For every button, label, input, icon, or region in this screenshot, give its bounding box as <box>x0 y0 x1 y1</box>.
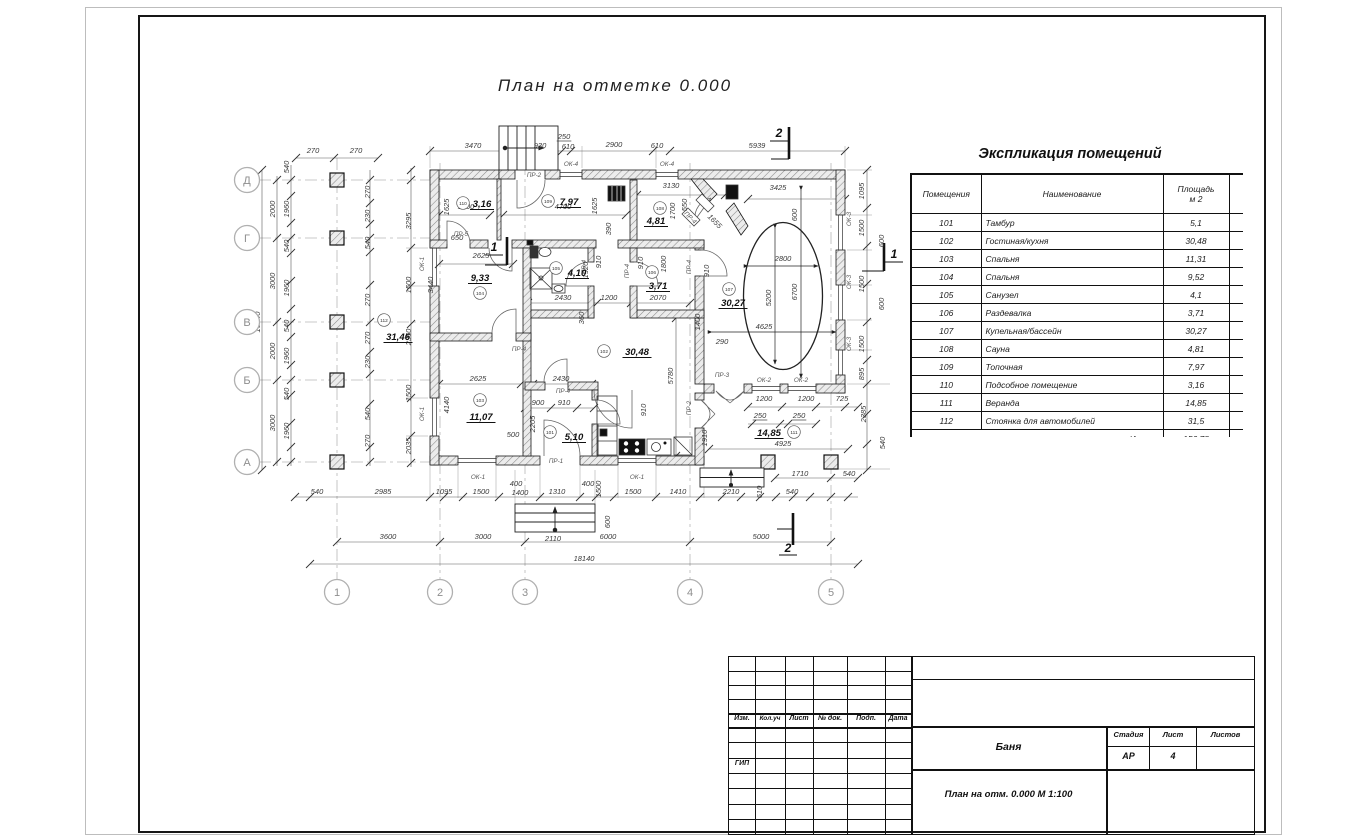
tb-col-ndok: № док. <box>813 715 847 722</box>
room-number: 101 <box>911 214 981 232</box>
axis-label: Г <box>244 233 250 245</box>
room-number: 102 <box>911 232 981 250</box>
explication-title: Экспликация помещений <box>905 146 1235 162</box>
room-area: 7,97 <box>560 197 579 208</box>
dim-label: 930 <box>534 141 547 150</box>
dim-label: 2985 <box>374 487 393 496</box>
room-name: Топочная <box>981 358 1163 376</box>
dim-label: 2800 <box>774 254 793 263</box>
room-name: Веранда <box>981 394 1163 412</box>
tb-col-list: Лист <box>785 715 813 722</box>
room-label: 10311,07 <box>467 394 496 423</box>
opening-label: ОК-4 <box>660 161 675 168</box>
room-number: 107 <box>725 287 733 293</box>
tb-sheets-label: Листов <box>1197 730 1254 739</box>
room-area: 30,27 <box>1163 322 1229 340</box>
dim-label: 540 <box>363 236 372 249</box>
dim-label: 1500 <box>404 276 413 294</box>
axis-label: 2 <box>437 587 443 599</box>
explication-header: К ж <box>1229 174 1243 214</box>
dim-label: 910 <box>594 255 603 268</box>
opening-label: ПР-4 <box>512 346 527 353</box>
room-number: 105 <box>911 286 981 304</box>
dim-label: 2000 <box>268 342 277 361</box>
room-number: 112 <box>911 412 981 430</box>
room-number: 102 <box>600 349 608 355</box>
table-row: 112Стоянка для автомобилей31,53 <box>911 412 1243 430</box>
room-extra <box>1229 232 1243 250</box>
dim-label: 1500 <box>857 335 866 353</box>
dim-label: 1500 <box>625 487 643 496</box>
opening-label: ПР-4 <box>556 388 571 395</box>
dim-label: 1095 <box>436 487 454 496</box>
room-label: 11114,85 <box>755 426 801 439</box>
dim-label: 1960 <box>282 200 291 218</box>
dim-label: 540 <box>311 487 324 496</box>
dim-label: 6700 <box>790 283 799 301</box>
dim-label: 540 <box>363 407 372 420</box>
dim-label: 600 <box>877 234 886 247</box>
dim-label: 2205 <box>528 415 537 434</box>
dim-label: 3425 <box>770 183 788 192</box>
dim-label: 3000 <box>475 532 493 541</box>
drawing-sheet: План на отметке 0.000 <box>0 0 1350 840</box>
room-number: 101 <box>546 430 554 436</box>
tb-col-izm: Изм. <box>729 715 755 722</box>
axis-bubble: 1 <box>325 580 350 605</box>
dim-label: 2625 <box>469 374 488 383</box>
dim-label: 2430 <box>554 293 573 302</box>
tb-gip: ГИП <box>729 760 755 767</box>
tb-project-name: Баня <box>911 741 1106 753</box>
room-area: 3,71 <box>1163 304 1229 322</box>
dim-label: 540 <box>282 160 291 173</box>
dim-label: 6000 <box>600 532 618 541</box>
dim-label: 895 <box>857 367 866 380</box>
dim-label: 5780 <box>666 367 675 385</box>
room-extra: 3 <box>1229 412 1243 430</box>
room-extra <box>1229 394 1243 412</box>
room-number: 106 <box>911 304 981 322</box>
room-number: 107 <box>911 322 981 340</box>
plan-text-layer: 3470930250610290061059392702701054020003… <box>235 126 898 605</box>
opening-label: ПР-3 <box>715 372 730 379</box>
dim-label: 900 <box>532 398 545 407</box>
dim-label: 4925 <box>775 439 793 448</box>
dim-label: 3000 <box>268 414 277 432</box>
dim-label: 3130 <box>663 181 681 190</box>
room-number: 110 <box>459 201 467 207</box>
table-row: 108Сауна4,81 <box>911 340 1243 358</box>
room-area: 3,71 <box>649 281 668 292</box>
tb-stage-value: АР <box>1108 751 1149 761</box>
explication-header: Наименование <box>981 174 1163 214</box>
opening-label: ОК-2 <box>757 377 772 384</box>
dim-label: 1400 <box>512 488 530 497</box>
room-extra <box>1229 358 1243 376</box>
dim-label: 2110 <box>544 534 562 543</box>
room-label: 1103,16 <box>457 197 494 210</box>
dim-label: 1200 <box>601 293 619 302</box>
dim-label: 3600 <box>380 532 398 541</box>
axis-label: Д <box>243 175 251 187</box>
dim-label: 230 <box>363 355 372 369</box>
room-name: Сауна <box>981 340 1163 358</box>
room-extra <box>1229 286 1243 304</box>
opening-label: ПР-4 <box>686 259 693 274</box>
explication-total-label: Итого: <box>911 430 1163 438</box>
room-extra <box>1229 322 1243 340</box>
room-number: 108 <box>911 340 981 358</box>
table-row: 110Подсобное помещение3,16 <box>911 376 1243 394</box>
dim-label: 1700 <box>668 202 677 220</box>
room-number: 112 <box>380 318 388 324</box>
room-name: Купельная/бассейн <box>981 322 1163 340</box>
room-label: 1097,97 <box>542 195 581 208</box>
opening-label: ПР-1 <box>549 458 563 465</box>
room-area: 14,85 <box>757 428 781 439</box>
tb-col-koluch: Кол.уч <box>755 715 785 722</box>
dim-label: 2385 <box>859 405 868 424</box>
dim-label: 270 <box>363 331 372 345</box>
room-extra <box>1229 250 1243 268</box>
opening-label: ПР-2 <box>686 400 693 415</box>
dim-label: 540 <box>282 387 291 400</box>
dim-label: 610 <box>755 485 764 498</box>
room-number: 104 <box>911 268 981 286</box>
dim-label: 725 <box>836 394 849 403</box>
dim-label: 500 <box>507 430 520 439</box>
dim-label: 610 <box>562 142 575 151</box>
dim-label: 1960 <box>282 347 291 365</box>
floor-plan: 3470930250610290061059392702701054020003… <box>150 20 930 630</box>
table-row: 107Купельная/бассейн30,27 <box>911 322 1243 340</box>
dim-label: 4625 <box>756 322 774 331</box>
axis-label: Б <box>243 375 250 387</box>
dim-label: 290 <box>715 337 729 346</box>
room-name: Санузел <box>981 286 1163 304</box>
room-number: 103 <box>476 398 484 404</box>
dim-label: 2070 <box>649 293 668 302</box>
room-area: 4,81 <box>646 216 666 227</box>
room-number: 109 <box>911 358 981 376</box>
room-label: 10230,48 <box>598 345 652 358</box>
dim-label: 1310 <box>549 487 567 496</box>
dim-label: 1500 <box>594 480 603 498</box>
dim-label: 1625 <box>590 197 599 215</box>
dim-label: 610 <box>651 141 664 150</box>
axis-label: 4 <box>687 587 693 599</box>
dimension-lines <box>262 151 867 564</box>
dim-label: 1910 <box>700 429 709 447</box>
explication-header: Помещения <box>911 174 981 214</box>
tb-col-data: Дата <box>885 715 911 722</box>
dim-label: 540 <box>282 319 291 332</box>
axis-bubble: Г <box>235 226 260 251</box>
dim-label: 250 <box>792 411 806 420</box>
axis-label: 1 <box>334 587 340 599</box>
room-area: 3,16 <box>473 199 492 210</box>
dim-label: 3440 <box>426 276 435 294</box>
opening-label: ОК-3 <box>846 211 853 226</box>
tb-stage-label: Стадия <box>1108 730 1149 739</box>
axis-label: В <box>243 317 250 329</box>
dim-label: 270 <box>306 146 320 155</box>
dim-label: 3000 <box>268 272 277 290</box>
dim-label: 1800 <box>659 255 668 273</box>
dim-label: 600 <box>790 208 799 221</box>
room-label: 1015,10 <box>544 426 586 443</box>
room-area: 4,1 <box>1163 286 1229 304</box>
tb-sheet-label: Лист <box>1150 730 1196 739</box>
axis-bubble: Б <box>235 368 260 393</box>
dim-label: 2430 <box>552 374 571 383</box>
room-number: 109 <box>544 199 552 205</box>
dim-label: 1500 <box>473 487 491 496</box>
opening-label: ПР-4 <box>624 263 631 278</box>
opening-label: ОК-3 <box>846 336 853 351</box>
dim-label: 2625 <box>472 251 491 260</box>
dim-label: 3470 <box>465 141 483 150</box>
dim-label: 1625 <box>442 198 451 216</box>
dim-label: 2000 <box>268 200 277 219</box>
axis-bubble: 2 <box>428 580 453 605</box>
room-name: Стоянка для автомобилей <box>981 412 1163 430</box>
table-row: 106Раздевалка3,71 <box>911 304 1243 322</box>
axis-bubble: В <box>235 310 260 335</box>
room-area: 31,5 <box>1163 412 1229 430</box>
explication-table-clip: ПомещенияНаименованиеПлощадь м 2К ж 101Т… <box>910 173 1243 437</box>
room-number: 106 <box>648 270 656 276</box>
room-area: 11,31 <box>1163 250 1229 268</box>
room-extra <box>1229 340 1243 358</box>
dim-label: 4140 <box>442 396 451 414</box>
room-number: 111 <box>911 394 981 412</box>
dim-label: 1960 <box>282 279 291 297</box>
dim-label: 360 <box>577 311 586 324</box>
room-area: 4,10 <box>567 268 587 279</box>
section-number: 2 <box>775 126 783 140</box>
room-area: 7,97 <box>1163 358 1229 376</box>
dim-label: 390 <box>604 222 613 235</box>
dim-label: 1200 <box>798 394 816 403</box>
dim-label: 2035 <box>404 437 413 456</box>
dim-label: 540 <box>878 436 887 449</box>
room-area: 5,10 <box>565 432 584 443</box>
explication-total-extra: 1 <box>1229 430 1243 438</box>
section-number: 1 <box>891 247 898 261</box>
section-number: 1 <box>491 240 498 254</box>
opening-label: ОК-1 <box>630 474 644 481</box>
dim-label: 910 <box>702 264 711 277</box>
explication-total-area: 156,78 <box>1163 430 1229 438</box>
room-label: 1084,81 <box>644 202 668 227</box>
dim-label: 2900 <box>605 140 624 149</box>
dim-label: 5939 <box>749 141 767 150</box>
title-block: Изм. Кол.уч Лист № док. Подп. Дата ГИП Б… <box>728 656 1255 835</box>
room-extra <box>1229 268 1243 286</box>
dim-label: 270 <box>363 293 372 307</box>
dim-label: 250 <box>753 411 767 420</box>
dim-label: 2210 <box>722 487 741 496</box>
axis-bubble: 5 <box>819 580 844 605</box>
opening-label: ПР-2 <box>527 172 542 179</box>
opening-label: ОК-3 <box>846 274 853 289</box>
explication-header: Площадь м 2 <box>1163 174 1229 214</box>
room-label: 1049,33 <box>468 273 492 299</box>
room-area: 30,48 <box>1163 232 1229 250</box>
axis-label: 3 <box>522 587 528 599</box>
dim-label: 1960 <box>282 422 291 440</box>
room-area: 4,81 <box>1163 340 1229 358</box>
dim-label: 540 <box>786 487 799 496</box>
room-number: 110 <box>911 376 981 394</box>
room-area: 9,33 <box>471 273 490 284</box>
dim-label: 1095 <box>857 182 866 200</box>
room-area: 30,27 <box>721 298 745 309</box>
table-row: 111Веранда14,85 <box>911 394 1243 412</box>
dim-label: 600 <box>603 515 612 528</box>
room-name: Раздевалка <box>981 304 1163 322</box>
dim-label: 540 <box>282 239 291 252</box>
axis-label: 5 <box>828 587 834 599</box>
room-number: 108 <box>656 206 664 212</box>
dim-label: 270 <box>349 146 363 155</box>
dim-label: 910 <box>558 398 571 407</box>
table-row: 105Санузел4,1 <box>911 286 1243 304</box>
axis-bubble: А <box>235 450 260 475</box>
room-name: Подсобное помещение <box>981 376 1163 394</box>
room-number: 103 <box>911 250 981 268</box>
explication-table: ПомещенияНаименованиеПлощадь м 2К ж 101Т… <box>910 173 1243 437</box>
room-name: Спальня <box>981 268 1163 286</box>
room-area: 31,46 <box>386 332 410 343</box>
room-number: 111 <box>790 430 798 436</box>
room-area: 14,85 <box>1163 394 1229 412</box>
axis-bubble: Д <box>235 168 260 193</box>
dim-label: 1500 <box>857 219 866 237</box>
room-area: 3,16 <box>1163 376 1229 394</box>
dim-label: 270 <box>363 434 372 448</box>
room-number: 104 <box>476 291 484 297</box>
dim-label: 5000 <box>753 532 771 541</box>
tb-col-podp: Подп. <box>847 715 885 722</box>
opening-label: ОК-4 <box>564 161 579 168</box>
table-row: 104Спальня9,52 <box>911 268 1243 286</box>
dim-label: 400 <box>510 479 523 488</box>
dim-label: 270 <box>363 185 372 199</box>
dim-label: 1410 <box>670 487 688 496</box>
dim-label: 1400 <box>693 313 702 331</box>
room-area: 5,1 <box>1163 214 1229 232</box>
dim-label: 600 <box>877 297 886 310</box>
opening-label: ОК-1 <box>419 257 426 271</box>
dim-label: 1710 <box>792 469 810 478</box>
opening-label: ПР-5 <box>454 231 469 238</box>
opening-label: ОК-1 <box>471 474 485 481</box>
dim-label: 5200 <box>764 289 773 307</box>
room-area: 9,52 <box>1163 268 1229 286</box>
dim-label: 910 <box>639 403 648 416</box>
tb-doc-title: План на отм. 0.000 М 1:100 <box>911 789 1106 800</box>
table-row: 109Топочная7,97 <box>911 358 1243 376</box>
dim-label: 910 <box>636 256 645 269</box>
table-row: 101Тамбур5,1 <box>911 214 1243 232</box>
dim-label: 1655 <box>706 212 725 231</box>
table-row: 102Гостиная/кухня30,48 <box>911 232 1243 250</box>
axis-bubble: 3 <box>513 580 538 605</box>
axis-bubble: 4 <box>678 580 703 605</box>
room-name: Гостиная/кухня <box>981 232 1163 250</box>
tb-sheet-value: 4 <box>1150 751 1196 761</box>
room-extra <box>1229 214 1243 232</box>
room-area: 11,07 <box>469 412 493 423</box>
table-row: 103Спальня11,31 <box>911 250 1243 268</box>
dim-label: 3295 <box>404 212 413 230</box>
axis-label: А <box>243 457 251 469</box>
dim-label: 230 <box>363 209 372 223</box>
room-extra <box>1229 376 1243 394</box>
room-label: 11231,46 <box>378 314 413 343</box>
dim-label: 1200 <box>756 394 774 403</box>
dim-label: 18140 <box>574 554 596 563</box>
room-extra <box>1229 304 1243 322</box>
room-number: 105 <box>552 266 560 272</box>
dim-label: 250 <box>557 132 571 141</box>
section-number: 2 <box>784 541 792 555</box>
dim-label: 1500 <box>857 275 866 293</box>
room-area: 30,48 <box>625 347 649 358</box>
dim-label: 540 <box>843 469 856 478</box>
opening-label: ОК-2 <box>794 377 809 384</box>
dim-label: 1500 <box>404 384 413 402</box>
opening-label: ОК-1 <box>419 407 426 421</box>
room-name: Тамбур <box>981 214 1163 232</box>
room-name: Спальня <box>981 250 1163 268</box>
